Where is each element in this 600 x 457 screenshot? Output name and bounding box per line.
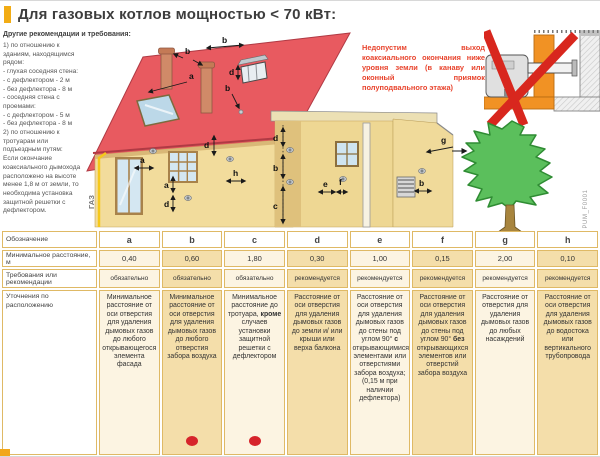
note-text: Расстояние от оси отверстия для удаления…	[292, 294, 343, 352]
row-label-requirement: Требования или рекомендации	[2, 269, 97, 288]
dim-label: b	[222, 35, 227, 45]
note-text: Минимальное расстояние от оси отверстия …	[102, 294, 156, 368]
coaxial-terminal-icon	[287, 148, 294, 153]
warning-text: Недопустим выход коаксиального окончания…	[362, 43, 485, 93]
note-text: Расстояние от оси отверстия для удаления…	[417, 294, 468, 377]
letter-cell: e	[350, 231, 411, 248]
dim-label: h	[233, 168, 238, 178]
distance-cell: 0,30	[287, 250, 348, 267]
page-header: Для газовых котлов мощностью < 70 кВт:	[4, 6, 336, 23]
porch-column	[363, 123, 370, 227]
page-title: Для газовых котлов мощностью < 70 кВт:	[18, 6, 336, 23]
red-dot-indicator	[249, 436, 261, 446]
dim-label: c	[273, 201, 278, 211]
letter-cell: b	[162, 231, 223, 248]
dim-label: f	[339, 177, 342, 187]
note-cell: Расстояние от оси отверстия для удаления…	[350, 290, 411, 455]
row-label-designation: Обозначение	[2, 231, 97, 248]
distance-cell: 1,00	[350, 250, 411, 267]
note-text: Расстояние от оси отверстия для удаления…	[353, 294, 410, 402]
row-label-min-distance: Минимальное расстояние, м	[2, 250, 97, 267]
letter-cell: g	[475, 231, 536, 248]
well-bottom	[554, 97, 600, 111]
pipe-terminal	[572, 60, 577, 76]
distance-cell: 2,00	[475, 250, 536, 267]
coaxial-terminal-icon	[419, 169, 426, 174]
coaxial-terminal-icon	[150, 149, 157, 154]
tree-trunk	[498, 205, 522, 232]
note-text: Минимальное расстояние до тротуара, кром…	[228, 294, 281, 360]
letter-cell: d	[287, 231, 348, 248]
coaxial-terminal-icon	[227, 157, 234, 162]
requirement-cell: обязательно	[162, 269, 223, 288]
dim-label: a	[164, 180, 169, 190]
distances-table: Обозначение a b c d e f g h Минимальное …	[2, 231, 598, 455]
dim-label: d	[164, 199, 169, 209]
chimney-left	[159, 48, 175, 89]
note-cell: Минимальное расстояние до тротуара, кром…	[224, 290, 285, 455]
dim-label: a	[140, 155, 145, 165]
red-dot-indicator	[186, 436, 198, 446]
title-marker-icon	[4, 6, 11, 23]
recommendations-text: 1) по отношению к зданиям, находящимся р…	[3, 42, 87, 216]
distance-cell: 0,40	[99, 250, 160, 267]
dim-label: g	[441, 135, 446, 145]
extension-window	[335, 141, 359, 167]
requirement-cell: обязательно	[99, 269, 160, 288]
note-cell: Расстояние от отверстия для удаления дым…	[475, 290, 536, 455]
dim-label: b	[185, 46, 190, 56]
note-cell: Расстояние от оси отверстия для удаления…	[287, 290, 348, 455]
letter-cell: f	[412, 231, 473, 248]
distance-cell: 0,60	[162, 250, 223, 267]
note-text: Минимальное расстояние от оси отверстия …	[167, 294, 216, 360]
coaxial-terminal-icon	[287, 180, 294, 185]
vent-grille	[397, 177, 415, 197]
distance-cell: 0,10	[537, 250, 598, 267]
note-cell: Расстояние от оси отверстия для удаления…	[537, 290, 598, 455]
tree-crown	[462, 121, 552, 209]
dim-label: b	[273, 163, 278, 173]
distance-cell: 0,15	[412, 250, 473, 267]
note-cell: Расстояние от оси отверстия для удаления…	[412, 290, 473, 455]
corner-shadow	[275, 121, 301, 227]
letter-cell: h	[537, 231, 598, 248]
note-cell: Минимальное расстояние от оси отверстия …	[162, 290, 223, 455]
requirement-cell: рекомендуется	[475, 269, 536, 288]
gas-pipe-label: ГАЗ	[87, 195, 96, 209]
tree-illustration	[450, 113, 570, 235]
tall-window	[115, 157, 143, 215]
dim-label: e	[323, 179, 328, 189]
dim-label: a	[189, 71, 194, 81]
distance-cell: 1,80	[224, 250, 285, 267]
requirement-cell: рекомендуется	[412, 269, 473, 288]
watermark-text: PUM_F0001	[583, 179, 589, 239]
requirement-cell: рекомендуется	[350, 269, 411, 288]
requirement-cell: обязательно	[224, 269, 285, 288]
dim-label: d	[273, 133, 278, 143]
row-label-notes: Уточнения по расположению	[2, 290, 97, 455]
note-text: Расстояние от отверстия для удаления дым…	[481, 294, 529, 343]
dim-label: b	[419, 178, 424, 188]
letter-cell: c	[224, 231, 285, 248]
requirement-cell: рекомендуется	[287, 269, 348, 288]
roof-terminal-icon	[239, 110, 243, 114]
note-text: Расстояние от оси отверстия для удаления…	[544, 294, 592, 360]
coaxial-terminal-icon	[185, 196, 192, 201]
dim-label: d	[204, 140, 209, 150]
chimney-right	[199, 62, 215, 113]
note-cell: Минимальное расстояние от оси отверстия …	[99, 290, 160, 455]
front-window	[168, 151, 198, 183]
letter-cell: a	[99, 231, 160, 248]
requirement-cell: рекомендуется	[537, 269, 598, 288]
dim-label: d	[229, 67, 234, 77]
infographic-page: Для газовых котлов мощностью < 70 кВт: Д…	[0, 0, 600, 457]
dim-label: b	[225, 83, 230, 93]
